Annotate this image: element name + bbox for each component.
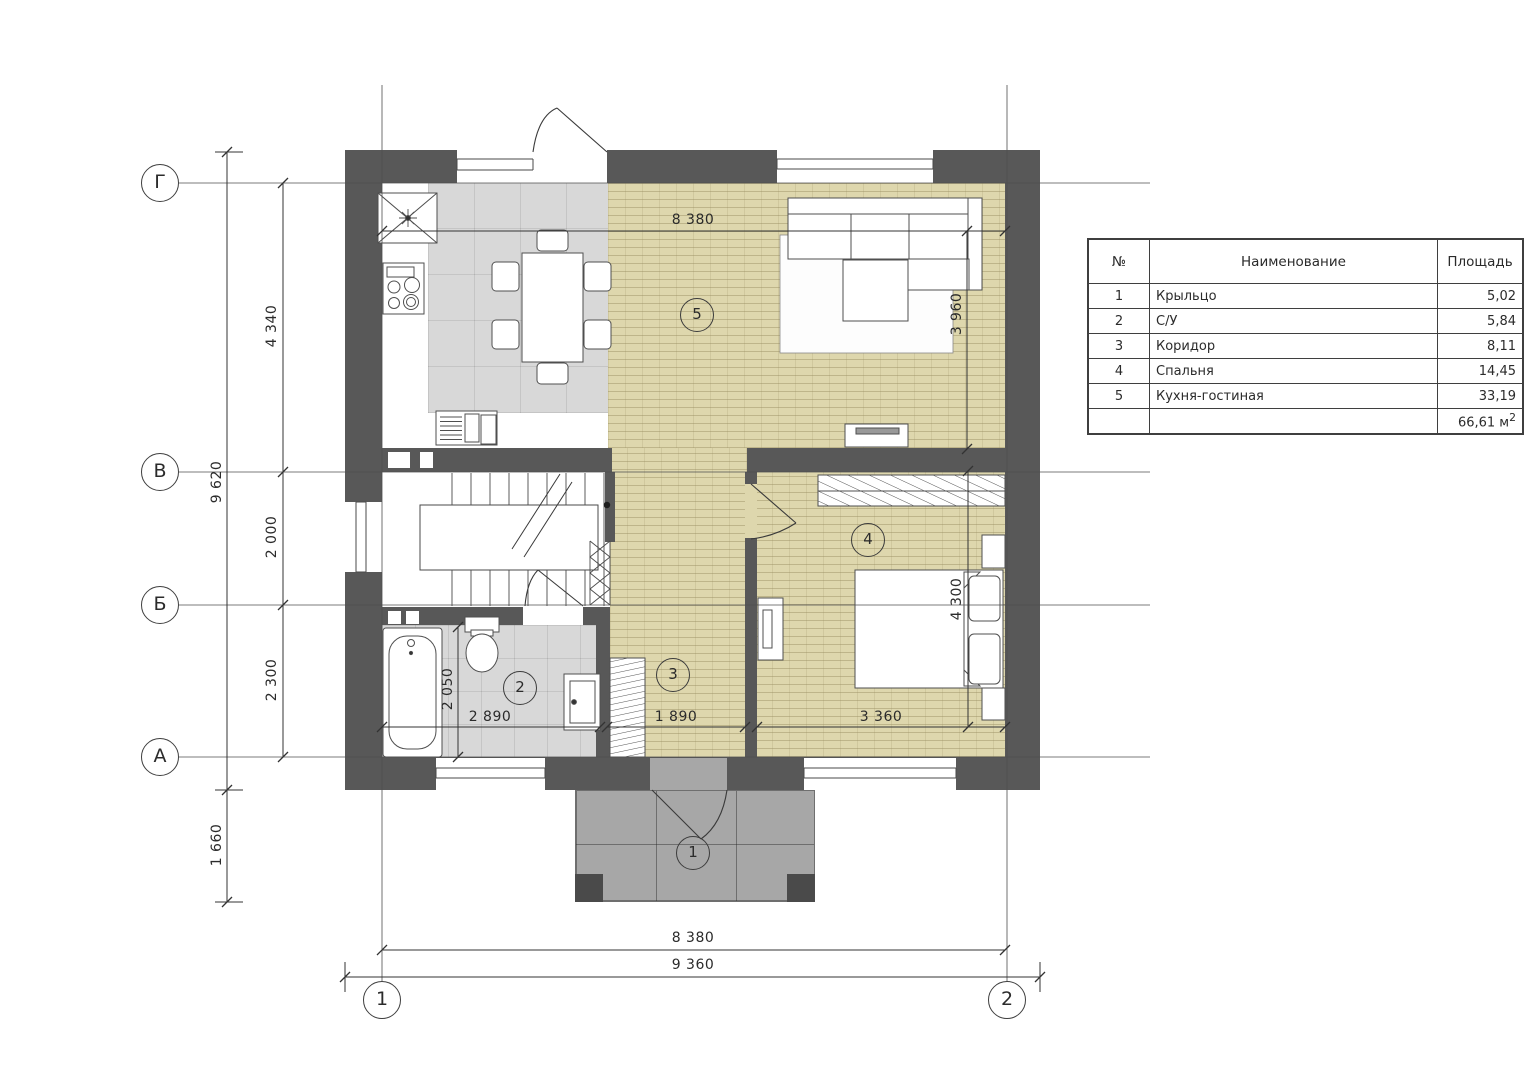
chair (492, 320, 519, 349)
stair-post (604, 502, 610, 508)
legend-col-area: Площадь (1438, 239, 1524, 284)
sofa (788, 198, 982, 259)
legend-total-row: 66,61 м2 (1088, 409, 1523, 435)
sofa-armrest (968, 198, 982, 290)
legend-cell-name: Крыльцо (1150, 284, 1438, 309)
bedroom-door-swing (751, 484, 796, 539)
dim-left-bottom: 2 300 (264, 640, 280, 720)
toilet (466, 634, 498, 672)
legend-total-sup: 2 (1509, 411, 1516, 424)
room-label-corridor: 3 (656, 658, 690, 692)
legend-cell-area: 5,84 (1438, 309, 1524, 334)
bathroom-door-swing (525, 570, 583, 606)
room-label-porch: 1 (676, 836, 710, 870)
legend-row: 4 Спальня 14,45 (1088, 359, 1523, 384)
legend-cell-area: 8,11 (1438, 334, 1524, 359)
grid-bubble-col-1: 1 (363, 981, 401, 1019)
legend-col-num: № (1088, 239, 1150, 284)
legend-cell-num: 1 (1088, 284, 1150, 309)
legend-col-name: Наименование (1150, 239, 1438, 284)
grid-bubble-row-b: Б (141, 586, 179, 624)
legend-total-value: 66,61 м (1458, 416, 1509, 431)
nightstand (982, 535, 1005, 568)
chair (537, 363, 568, 384)
pillow (969, 634, 1000, 684)
dining-table (522, 253, 583, 362)
legend-header-row: № Наименование Площадь (1088, 239, 1523, 284)
dresser (758, 598, 783, 660)
legend-row: 1 Крыльцо 5,02 (1088, 284, 1523, 309)
rear-door-swing (533, 108, 607, 152)
dim-left-top: 4 340 (264, 286, 280, 366)
dim-bottom-outer: 9 360 (653, 957, 733, 973)
grid-bubble-row-g: Г (141, 164, 179, 202)
dim-left-porch: 1 660 (209, 805, 225, 885)
entry-door-swing (652, 790, 727, 839)
legend-row: 3 Коридор 8,11 (1088, 334, 1523, 359)
bathtub (383, 628, 442, 757)
legend-cell-area: 14,45 (1438, 359, 1524, 384)
chair (537, 230, 568, 251)
dim-living-depth: 3 960 (949, 274, 965, 354)
room-legend-table: № Наименование Площадь 1 Крыльцо 5,02 2 … (1087, 238, 1524, 435)
plan-linework (0, 0, 1528, 1080)
legend-cell-num: 2 (1088, 309, 1150, 334)
tv (856, 428, 899, 434)
chair (492, 262, 519, 291)
grid-bubble-row-v: В (141, 453, 179, 491)
legend-cell-name: Кухня-гостиная (1150, 384, 1438, 409)
stair-railing (420, 505, 598, 570)
legend-cell-area: 5,02 (1438, 284, 1524, 309)
room-label-bedroom: 4 (851, 523, 885, 557)
staircase (420, 473, 610, 606)
legend-row: 5 Кухня-гостиная 33,19 (1088, 384, 1523, 409)
hall-cabinet-hatch (610, 658, 645, 757)
legend-cell-num: 5 (1088, 384, 1150, 409)
dim-bedroom-width: 3 360 (841, 709, 921, 725)
dim-left-mid: 2 000 (264, 497, 280, 577)
dim-left-total: 9 620 (209, 442, 225, 522)
dim-bedroom-depth: 4 300 (949, 559, 965, 639)
dim-top-width: 8 380 (653, 212, 733, 228)
nightstand (982, 688, 1005, 720)
legend-cell-name: Спальня (1150, 359, 1438, 384)
legend-total-area: 66,61 м2 (1438, 409, 1524, 435)
chair (584, 262, 611, 291)
room-label-bathroom: 2 (503, 671, 537, 705)
dim-bath-width: 2 890 (450, 709, 530, 725)
legend-cell-num: 3 (1088, 334, 1150, 359)
dim-hall-width: 1 890 (636, 709, 716, 725)
legend-row: 2 С/У 5,84 (1088, 309, 1523, 334)
pillow (969, 576, 1000, 621)
grid-bubble-col-2: 2 (988, 981, 1026, 1019)
grid-bubble-row-a: А (141, 738, 179, 776)
legend-cell-num: 4 (1088, 359, 1150, 384)
legend-cell-name: Коридор (1150, 334, 1438, 359)
chair (584, 320, 611, 349)
legend-total-empty (1150, 409, 1438, 435)
dim-bottom-inner: 8 380 (653, 930, 733, 946)
coffee-table (843, 260, 908, 321)
legend-total-empty (1088, 409, 1150, 435)
legend-cell-name: С/У (1150, 309, 1438, 334)
room-label-kitchen-living: 5 (680, 298, 714, 332)
tv-stand (845, 424, 908, 447)
floor-plan-sheet: Г В Б А 1 2 1 2 3 4 5 8 380 8 380 9 360 … (0, 0, 1528, 1080)
legend-cell-area: 33,19 (1438, 384, 1524, 409)
